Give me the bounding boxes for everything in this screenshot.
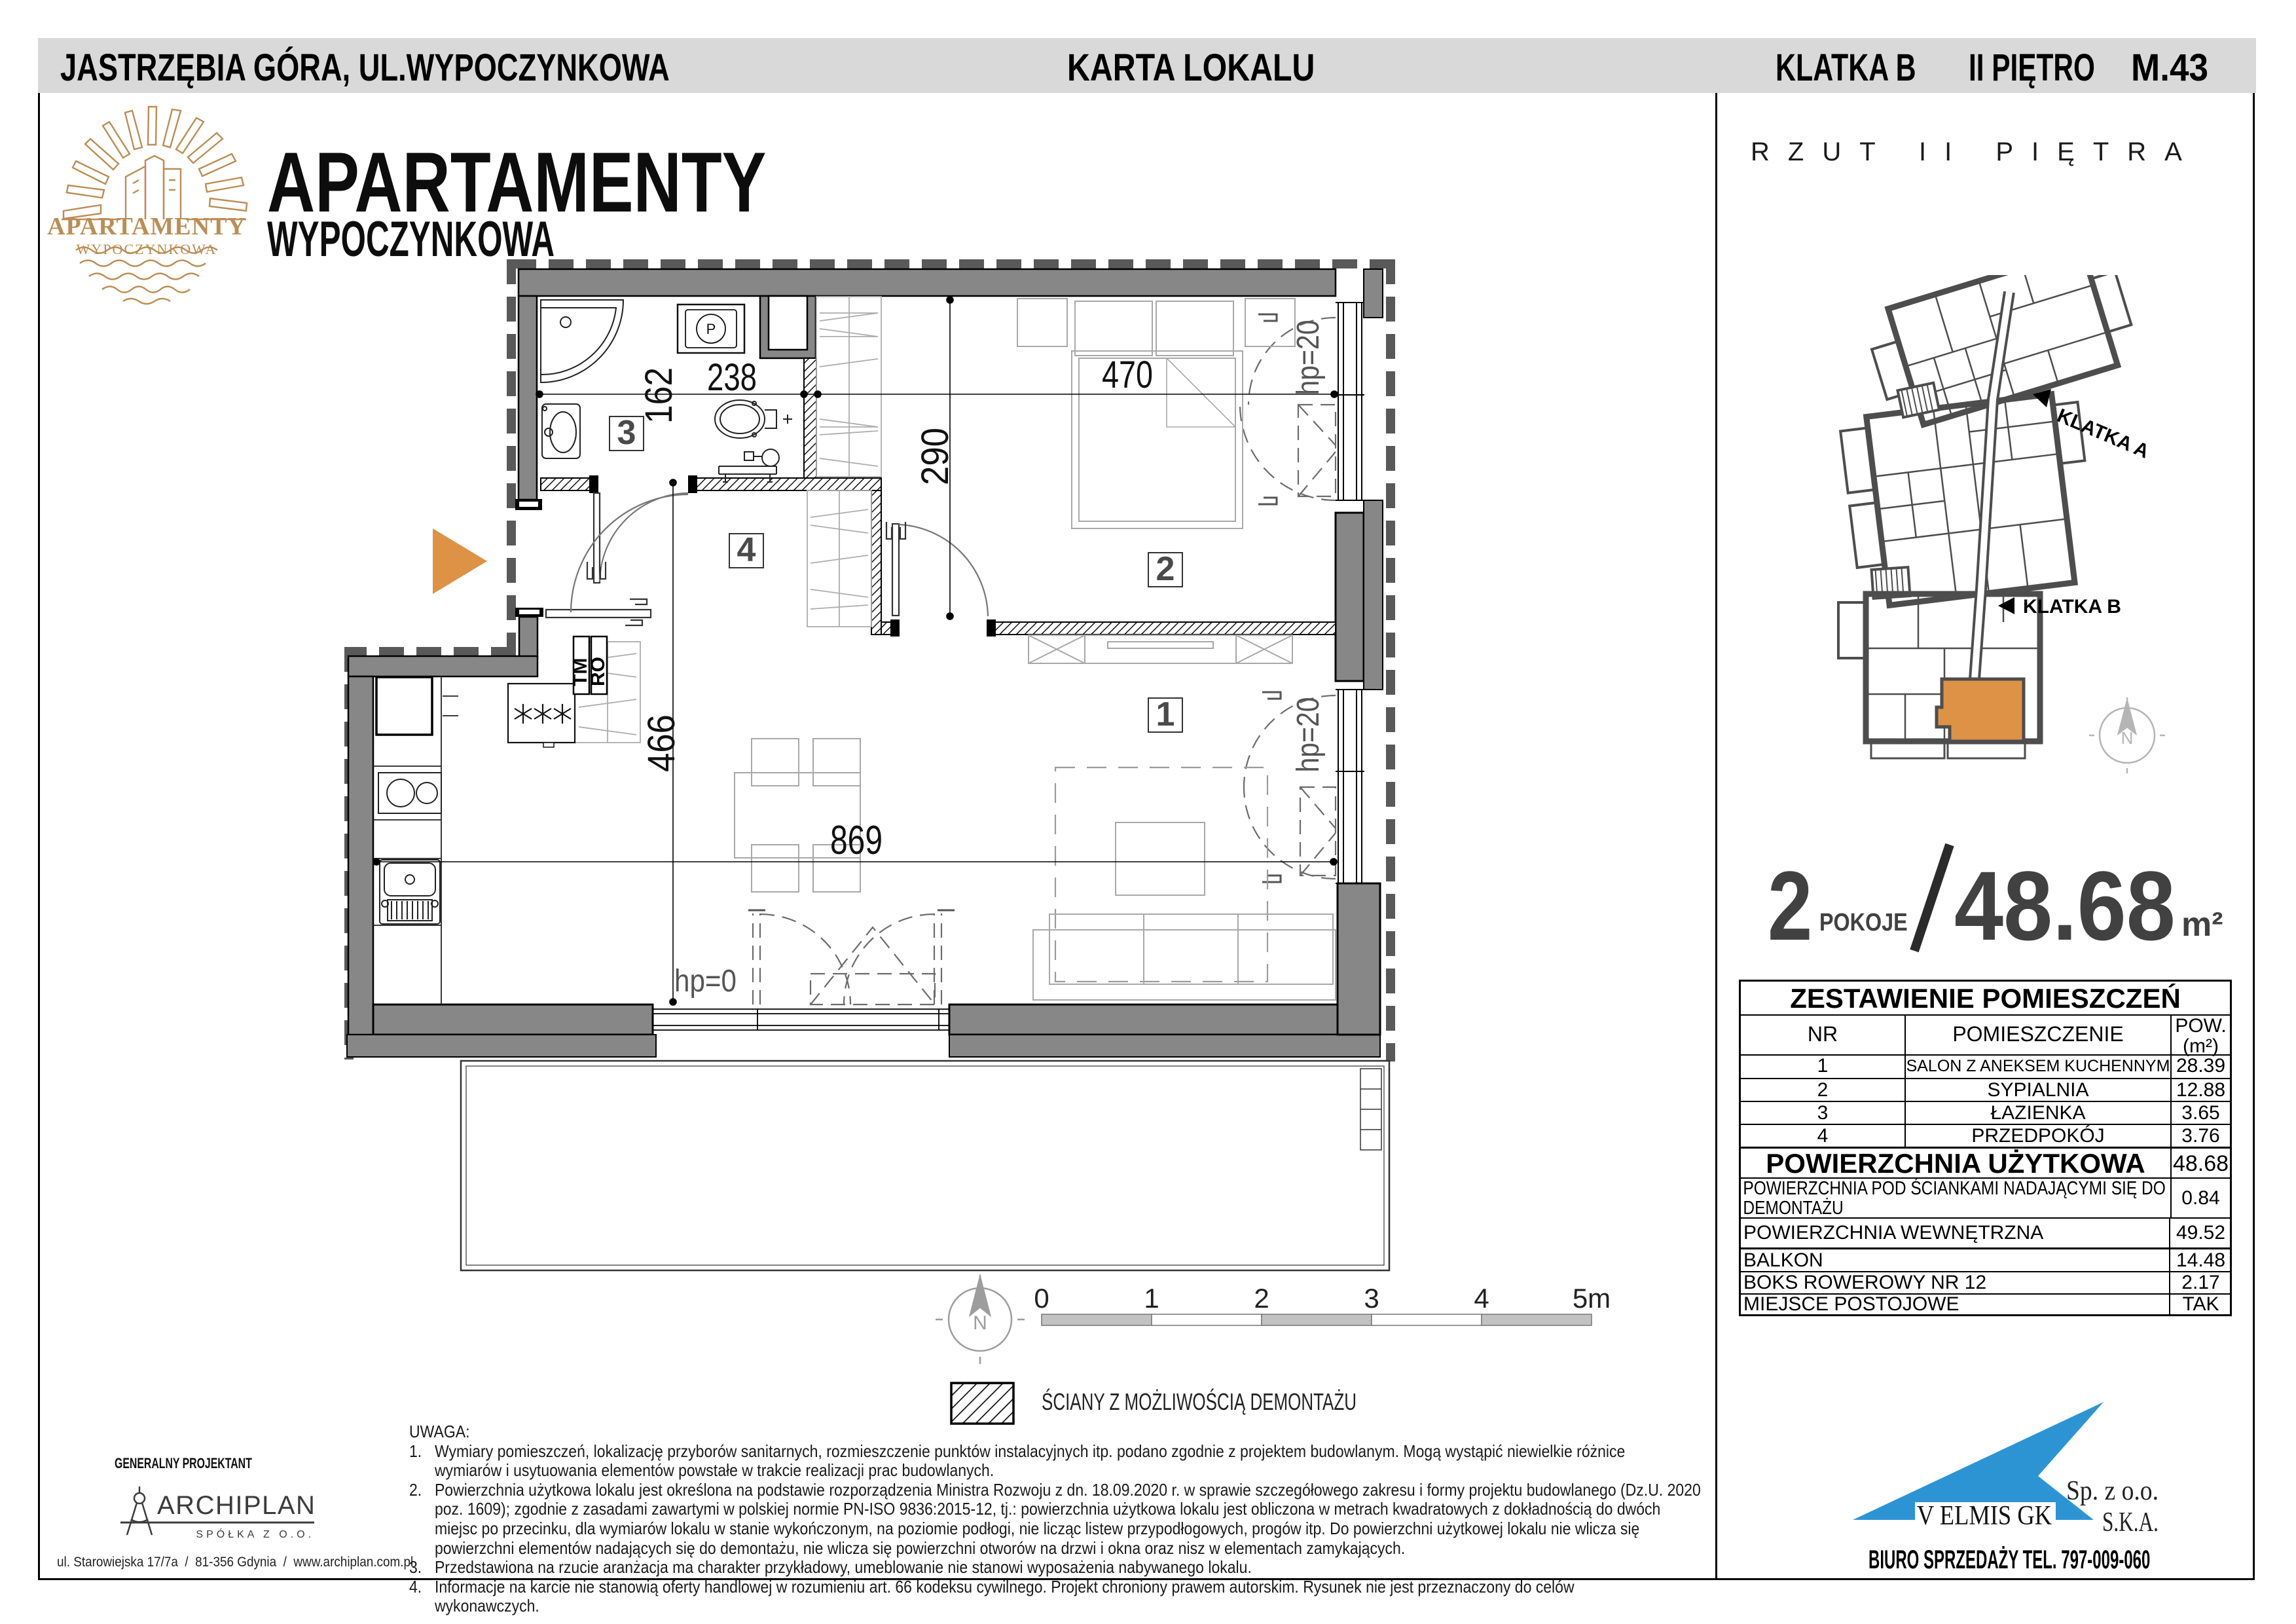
svg-text:238: 238	[707, 356, 757, 399]
svg-text:KLATKA A: KLATKA A	[2054, 405, 2152, 463]
svg-text:466: 466	[640, 714, 683, 772]
svg-text:3: 3	[617, 414, 636, 452]
svg-text:2: 2	[1254, 1283, 1269, 1314]
svg-text:2: 2	[1156, 550, 1175, 588]
svg-text:Sp. z o.o.: Sp. z o.o.	[2066, 1476, 2159, 1506]
svg-text:V ELMIS GK: V ELMIS GK	[1917, 1501, 2052, 1531]
svg-text:ARCHIPLAN: ARCHIPLAN	[157, 1491, 316, 1520]
svg-text:290: 290	[914, 428, 957, 485]
svg-text:S.K.A.: S.K.A.	[2102, 1507, 2159, 1538]
svg-text:470: 470	[1102, 354, 1153, 396]
svg-text:869: 869	[830, 818, 883, 863]
svg-text:P: P	[706, 321, 716, 337]
svg-text:N: N	[973, 1312, 987, 1334]
svg-text:RO: RO	[587, 657, 609, 686]
svg-text:KLATKA B: KLATKA B	[2023, 596, 2121, 618]
svg-text:1: 1	[1144, 1283, 1159, 1314]
svg-text:hp=0: hp=0	[674, 964, 737, 999]
svg-text:4: 4	[1474, 1283, 1489, 1314]
svg-text:ŚCIANY Z MOŻLIWOŚCIĄ DEMONTAŻU: ŚCIANY Z MOŻLIWOŚCIĄ DEMONTAŻU	[1042, 1388, 1357, 1415]
svg-text:N: N	[2121, 728, 2134, 748]
svg-text:hp=20: hp=20	[1291, 697, 1326, 773]
svg-text:3: 3	[1364, 1283, 1379, 1314]
svg-text:SPÓŁKA Z O.O.: SPÓŁKA Z O.O.	[196, 1528, 314, 1540]
svg-text:5m: 5m	[1573, 1283, 1611, 1314]
svg-text:162: 162	[638, 367, 680, 424]
svg-text:4: 4	[737, 531, 756, 569]
svg-text:1: 1	[1156, 695, 1175, 733]
svg-text:0: 0	[1034, 1283, 1049, 1314]
svg-text:hp=20: hp=20	[1291, 320, 1326, 396]
